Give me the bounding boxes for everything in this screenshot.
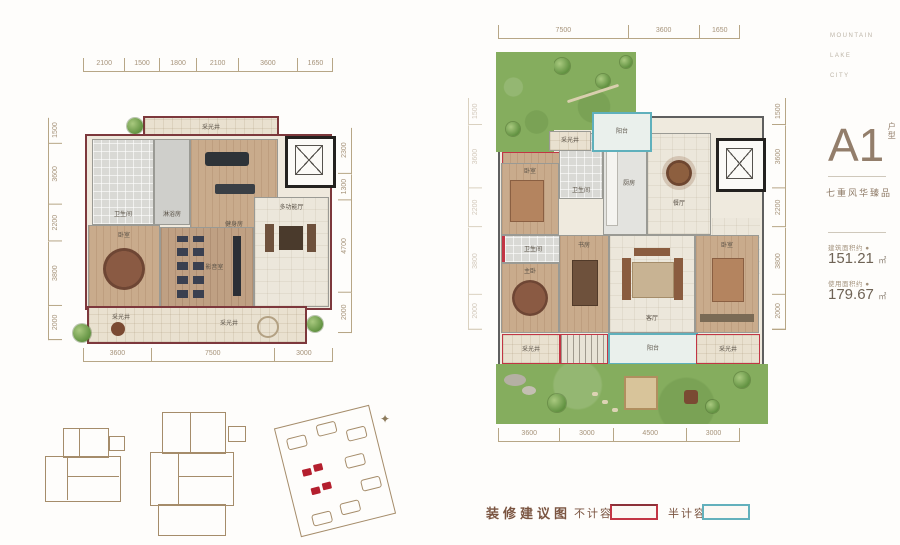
room-label: 采光井 bbox=[522, 344, 540, 353]
cinema-seats bbox=[177, 236, 188, 298]
compass-icon: ✦ bbox=[380, 412, 390, 426]
elevator-icon bbox=[726, 148, 753, 179]
unit-type-label: 户型 bbox=[886, 122, 897, 140]
dimension-value: 7500 bbox=[498, 25, 628, 39]
legend-teal-swatch bbox=[702, 504, 750, 520]
balcony-top: 阳台 bbox=[592, 112, 652, 152]
area1-unit: ㎡ bbox=[878, 256, 886, 265]
site-building bbox=[360, 475, 382, 491]
tree-icon bbox=[73, 324, 91, 342]
dimension-value: 2000 bbox=[338, 293, 352, 333]
dimension-value: 2300 bbox=[338, 128, 352, 174]
dimension-value: 1800 bbox=[159, 58, 197, 72]
room-label: 采光井 bbox=[561, 135, 579, 144]
room-label: 采光井 bbox=[112, 312, 130, 321]
dimension-value: 3800 bbox=[468, 228, 482, 295]
left-plan-body: 卫生间 淋浴房 健身房 多功能厅 卧室 影音室 bbox=[85, 134, 332, 310]
sofa bbox=[622, 258, 631, 300]
sofa bbox=[307, 224, 316, 252]
dimension-value: 3000 bbox=[559, 428, 613, 442]
site-highlight-unit bbox=[310, 486, 320, 495]
tree-icon bbox=[506, 122, 520, 136]
skylight-top: 采光井 bbox=[550, 132, 590, 150]
sofa bbox=[674, 258, 683, 300]
bed bbox=[510, 180, 544, 222]
room-master: 主卧 bbox=[502, 264, 558, 332]
legend-title: 装修建议图 bbox=[486, 503, 571, 522]
dimension-value: 2100 bbox=[83, 58, 124, 72]
dimension-value: 3600 bbox=[83, 348, 151, 362]
site-highlight-unit bbox=[313, 463, 323, 472]
keyplan-outline bbox=[63, 428, 109, 458]
tree-icon bbox=[548, 394, 566, 412]
rug bbox=[632, 262, 674, 298]
room-bath2: 卫生间 bbox=[502, 236, 561, 262]
dimension-value: 1300 bbox=[338, 174, 352, 200]
unit-title: A1 户型 bbox=[828, 122, 897, 168]
dimension-value: 2100 bbox=[196, 58, 237, 72]
left-plan-dims-right: 2300130047002000 bbox=[338, 128, 352, 333]
dimension-value: 1500 bbox=[124, 58, 158, 72]
site-building bbox=[315, 421, 337, 437]
room-label: 采光井 bbox=[220, 318, 238, 327]
room-bedroom1: 卧室 bbox=[502, 164, 558, 234]
dimension-value: 2000 bbox=[48, 306, 62, 340]
round-bed bbox=[512, 280, 548, 316]
dimension-value: 2200 bbox=[468, 188, 482, 227]
room-label: 多功能厅 bbox=[279, 202, 303, 211]
keyplan-outline bbox=[162, 412, 226, 454]
area2: 179.67 ㎡ bbox=[828, 286, 886, 304]
site-building bbox=[345, 425, 367, 441]
room-label: 主卧 bbox=[524, 266, 536, 275]
room-label: 采光井 bbox=[719, 344, 737, 353]
room-label: 卧室 bbox=[118, 230, 130, 239]
site-building bbox=[286, 434, 308, 450]
left-plan-dims-bottom: 360075003000 bbox=[83, 348, 333, 362]
room-living: 客厅 bbox=[610, 236, 694, 332]
brand-block: MOUNTAIN LAKE CITY bbox=[830, 26, 874, 86]
stepping-stone bbox=[602, 400, 608, 404]
desk bbox=[572, 260, 598, 306]
round-bed bbox=[103, 248, 145, 290]
keyplan-2 bbox=[150, 412, 254, 536]
right-floor-plan: 卧室 卫生间 厨房 餐厅 玄关 卫生间 主卧 书房 bbox=[496, 52, 768, 424]
dimension-value: 1650 bbox=[699, 25, 740, 39]
dimension-value: 1500 bbox=[468, 98, 482, 125]
keyplan-elevator bbox=[228, 426, 246, 442]
right-plan-dims-bottom: 3600300045003000 bbox=[498, 428, 740, 442]
room-label: 淋浴房 bbox=[163, 209, 181, 218]
brand-line2: LAKE bbox=[830, 46, 874, 66]
right-plan-dims-top: 750036001650 bbox=[498, 25, 740, 39]
right-plan-dims-right: 15003600220038002000 bbox=[772, 98, 786, 330]
dimension-value: 1650 bbox=[297, 58, 333, 72]
room-bedroom2: 卧室 bbox=[696, 236, 758, 332]
left-floor-plan: 采光井 卫生间 淋浴房 健身房 多功能厅 卧室 bbox=[85, 116, 333, 346]
dimension-value: 3000 bbox=[274, 348, 333, 362]
cinema-screen bbox=[233, 236, 241, 296]
right-plan-body: 卧室 卫生间 厨房 餐厅 玄关 卫生间 主卧 书房 bbox=[498, 116, 764, 368]
tree-icon bbox=[620, 56, 632, 68]
room-cinema: 影音室 bbox=[161, 228, 253, 306]
skylight-bottom-left: 采光井 bbox=[502, 334, 560, 364]
dimension-value: 2000 bbox=[468, 294, 482, 330]
sofa bbox=[265, 224, 274, 252]
room-dining: 餐厅 bbox=[648, 134, 710, 234]
site-highlight-unit bbox=[302, 468, 312, 477]
table bbox=[279, 226, 303, 250]
site-building bbox=[311, 510, 333, 526]
elevator-shaft bbox=[716, 138, 766, 192]
cinema-seats bbox=[193, 236, 204, 298]
keyplan-1 bbox=[45, 428, 129, 508]
elevator-icon bbox=[295, 145, 323, 175]
dimension-value: 3600 bbox=[48, 144, 62, 205]
dimension-value: 3600 bbox=[238, 58, 297, 72]
keyplan-line bbox=[67, 476, 119, 477]
area1-value: 151.21 bbox=[828, 250, 874, 267]
tree-icon bbox=[706, 400, 719, 413]
site-building bbox=[344, 453, 366, 469]
room-label: 影音室 bbox=[205, 262, 223, 271]
dimension-value: 3000 bbox=[686, 428, 740, 442]
dimension-value: 3800 bbox=[48, 242, 62, 306]
dimension-value: 2000 bbox=[772, 294, 786, 330]
divider bbox=[828, 232, 886, 233]
unit-tagline: 七重风华臻品 bbox=[826, 186, 892, 199]
room-bath: 卫生间 bbox=[93, 140, 153, 224]
dimension-value: 3800 bbox=[772, 228, 786, 295]
dimension-value: 3600 bbox=[468, 125, 482, 188]
garden-bottom bbox=[496, 364, 768, 424]
garden-left bbox=[496, 52, 554, 152]
room-label: 卧室 bbox=[524, 166, 536, 175]
dimension-value: 3600 bbox=[498, 428, 559, 442]
room-label: 阳台 bbox=[647, 343, 659, 352]
left-plan-dims-top: 210015001800210036001650 bbox=[83, 58, 333, 72]
room-label: 卫生间 bbox=[572, 185, 590, 194]
pavilion bbox=[624, 376, 658, 410]
area1: 151.21 ㎡ bbox=[828, 250, 886, 268]
brand-line1: MOUNTAIN bbox=[830, 26, 874, 46]
room-label: 采光井 bbox=[202, 122, 220, 131]
balcony-bottom: 阳台 bbox=[608, 333, 698, 365]
stepping-stone bbox=[612, 408, 618, 412]
patio-table bbox=[111, 322, 125, 336]
room-label: 卫生间 bbox=[114, 209, 132, 218]
divider bbox=[828, 176, 886, 177]
rocks bbox=[504, 374, 526, 386]
legend-red-swatch bbox=[610, 504, 658, 520]
dining-table bbox=[666, 160, 692, 186]
room-study: 书房 bbox=[560, 236, 608, 332]
gym-equipment bbox=[215, 184, 255, 194]
room-label: 餐厅 bbox=[673, 198, 685, 207]
dimension-value: 4700 bbox=[338, 200, 352, 293]
sofa bbox=[634, 248, 670, 256]
stairs bbox=[560, 334, 608, 364]
tree-icon bbox=[307, 316, 323, 332]
tree-icon bbox=[127, 118, 143, 134]
dimension-value: 2200 bbox=[772, 188, 786, 227]
room-label: 健身房 bbox=[225, 219, 243, 228]
stepping-stone bbox=[592, 392, 598, 396]
elevator-shaft bbox=[285, 136, 336, 188]
site-plan bbox=[274, 405, 396, 537]
room-bedroom: 卧室 bbox=[89, 226, 159, 306]
bed bbox=[712, 258, 744, 302]
dimension-value: 4500 bbox=[613, 428, 686, 442]
garden-path bbox=[567, 84, 619, 104]
room-label: 阳台 bbox=[616, 126, 628, 135]
rocks bbox=[522, 386, 536, 395]
keyplan-outline bbox=[45, 456, 121, 502]
dimension-value: 3600 bbox=[628, 25, 699, 39]
keyplan-line bbox=[79, 428, 80, 456]
site-highlight-unit bbox=[322, 481, 332, 490]
dimension-value: 1500 bbox=[48, 118, 62, 144]
site-building bbox=[339, 499, 361, 515]
dimension-value: 7500 bbox=[151, 348, 274, 362]
room-multi-hall: 多功能厅 bbox=[255, 198, 328, 306]
tree-icon bbox=[734, 372, 750, 388]
wardrobe bbox=[700, 314, 754, 322]
keyplan-outline bbox=[150, 452, 234, 506]
brand-line3: CITY bbox=[830, 66, 874, 86]
tree-icon bbox=[554, 58, 570, 74]
unit-name: A1 bbox=[828, 122, 884, 168]
skylight-bottom-right: 采光井 bbox=[696, 334, 760, 364]
room-label: 书房 bbox=[578, 240, 590, 249]
room-label: 卧室 bbox=[721, 240, 733, 249]
room-label: 卫生间 bbox=[524, 244, 542, 253]
left-plan-dims-left: 15003600220038002000 bbox=[48, 118, 62, 340]
keyplan-line bbox=[67, 456, 68, 500]
keyplan-line bbox=[178, 476, 232, 477]
keyplan-garden-outline bbox=[158, 504, 226, 536]
keyplan-line bbox=[178, 452, 179, 504]
room-shower: 淋浴房 bbox=[155, 140, 189, 224]
area2-value: 179.67 bbox=[828, 286, 874, 303]
garden-table bbox=[684, 390, 698, 404]
rosette bbox=[257, 316, 279, 338]
room-label: 客厅 bbox=[646, 313, 658, 322]
right-plan-dims-left: 15003600220038002000 bbox=[468, 98, 482, 330]
left-skylight-strip: 采光井 采光井 bbox=[87, 306, 307, 344]
dimension-value: 1500 bbox=[772, 98, 786, 125]
room-label: 厨房 bbox=[623, 178, 635, 187]
gym-equipment bbox=[205, 152, 249, 166]
dimension-value: 3600 bbox=[772, 125, 786, 188]
keyplan-line bbox=[190, 412, 191, 452]
keyplan-elevator bbox=[109, 436, 125, 451]
area2-unit: ㎡ bbox=[878, 292, 886, 301]
legend-not-counted-label: 不计容 bbox=[574, 505, 613, 521]
dimension-value: 2200 bbox=[48, 204, 62, 241]
